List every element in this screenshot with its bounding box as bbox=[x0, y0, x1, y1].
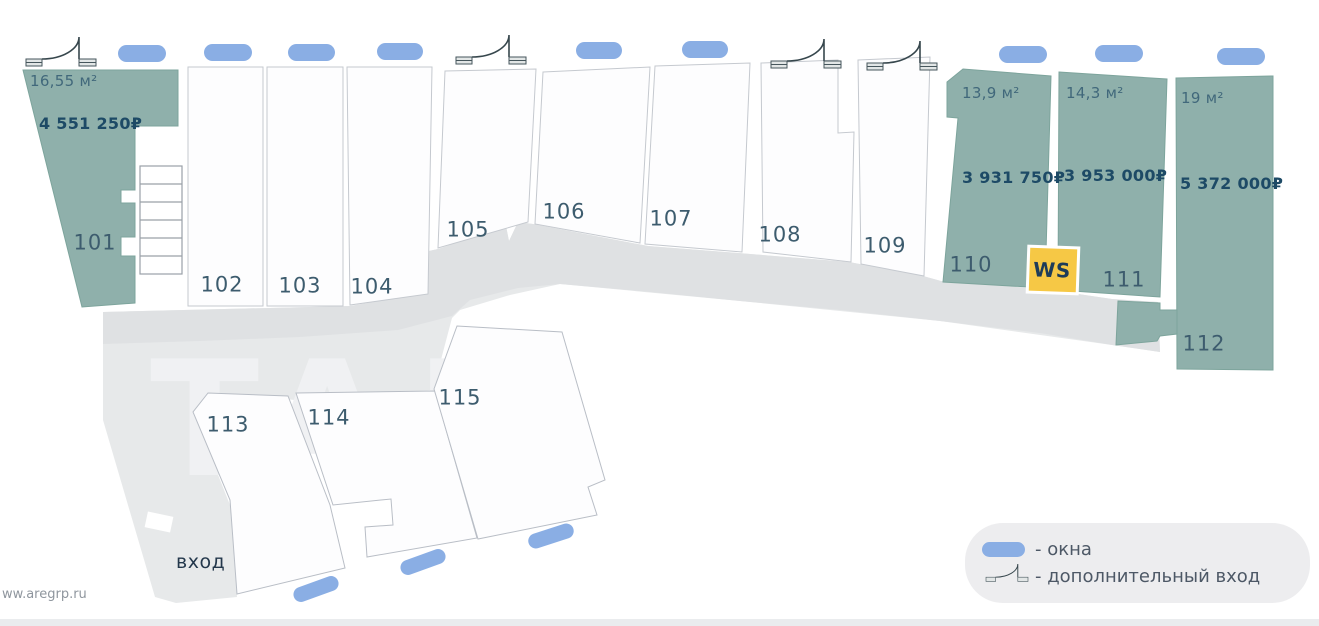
unit-110-area: 13,9 м² bbox=[962, 86, 1020, 101]
unit-111-number[interactable]: 111 bbox=[1102, 270, 1145, 291]
window-icon bbox=[118, 45, 166, 62]
window-icon bbox=[204, 44, 252, 61]
unit-112-area: 19 м² bbox=[1181, 91, 1224, 106]
window-icon bbox=[398, 547, 447, 577]
bottom-edge-strip bbox=[0, 619, 1319, 626]
door-icon bbox=[456, 35, 526, 64]
window-icon bbox=[288, 44, 335, 61]
unit-106-number[interactable]: 106 bbox=[542, 202, 585, 223]
unit-102-shape[interactable] bbox=[188, 67, 263, 306]
legend-window-icon bbox=[982, 542, 1025, 557]
unit-101-price: 4 551 250₽ bbox=[39, 116, 142, 132]
door-icon bbox=[26, 37, 96, 66]
unit-110-price: 3 931 750₽ bbox=[962, 170, 1065, 186]
unit-104-number[interactable]: 104 bbox=[350, 277, 393, 298]
unit-109-number[interactable]: 109 bbox=[863, 236, 906, 257]
legend-door-label: - дополнительный вход bbox=[1035, 568, 1260, 586]
unit-102-number[interactable]: 102 bbox=[200, 275, 243, 296]
window-icon bbox=[576, 42, 622, 59]
unit-112-shape[interactable] bbox=[1176, 76, 1273, 370]
unit-114-number[interactable]: 114 bbox=[307, 408, 350, 429]
watermark-url: ww.aregrp.ru bbox=[2, 588, 87, 601]
unit-112-price: 5 372 000₽ bbox=[1180, 176, 1283, 192]
unit-101-number[interactable]: 101 bbox=[73, 233, 116, 254]
unit-105-number[interactable]: 105 bbox=[446, 220, 489, 241]
unit-107-number[interactable]: 107 bbox=[649, 209, 692, 230]
legend-window-label: - окна bbox=[1035, 541, 1092, 559]
unit-115-number[interactable]: 115 bbox=[438, 388, 481, 409]
unit-113-number[interactable]: 113 bbox=[206, 415, 249, 436]
unit-108-number[interactable]: 108 bbox=[758, 225, 801, 246]
unit-111-annex-shape bbox=[1116, 301, 1177, 345]
floor-plan: ТАЛ bbox=[0, 0, 1319, 626]
unit-104-shape[interactable] bbox=[347, 67, 432, 305]
unit-103-number[interactable]: 103 bbox=[278, 276, 321, 297]
unit-110-number[interactable]: 110 bbox=[949, 255, 992, 276]
unit-103-shape[interactable] bbox=[267, 67, 343, 306]
window-icon bbox=[1217, 48, 1265, 65]
legend bbox=[965, 523, 1310, 603]
unit-111-area: 14,3 м² bbox=[1066, 86, 1124, 101]
window-icon bbox=[377, 43, 423, 60]
stairs-icon bbox=[140, 166, 182, 274]
window-icon bbox=[1095, 45, 1143, 62]
unit-112-number[interactable]: 112 bbox=[1182, 334, 1225, 355]
unit-111-price: 3 953 000₽ bbox=[1064, 168, 1167, 184]
window-icon bbox=[682, 41, 728, 58]
ws-label: WS bbox=[1033, 259, 1071, 280]
window-icon bbox=[999, 46, 1047, 63]
unit-101-area: 16,55 м² bbox=[30, 74, 97, 89]
entrance-label: вход bbox=[176, 553, 225, 572]
